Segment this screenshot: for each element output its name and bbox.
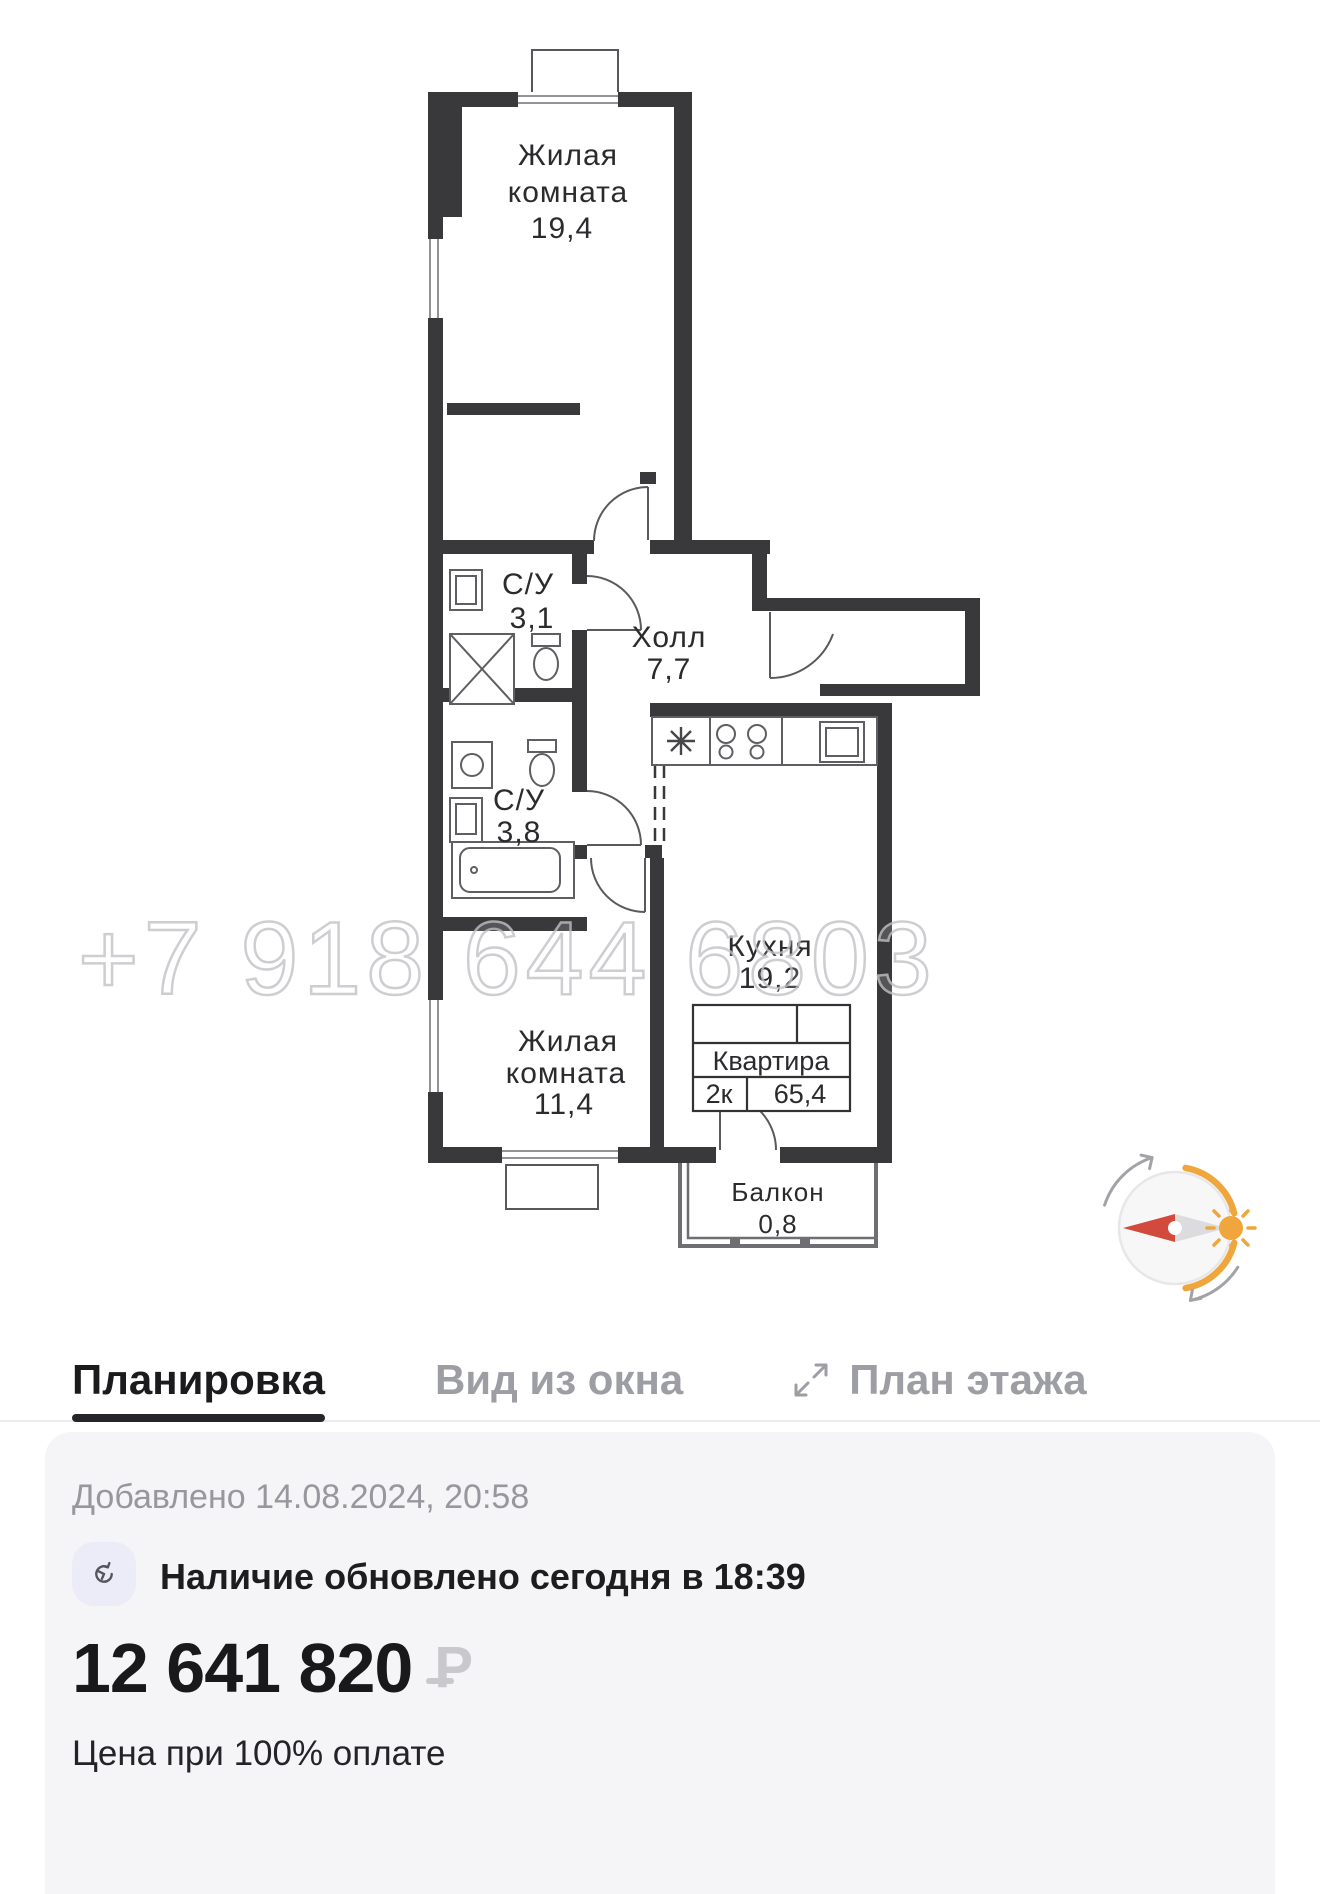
- tab-window-view[interactable]: Вид из окна: [435, 1340, 683, 1420]
- table-title: Квартира: [713, 1046, 831, 1076]
- price-row: 12 641 820 Р: [72, 1628, 473, 1708]
- hall-label: Холл: [632, 621, 707, 654]
- tab-window-view-label: Вид из окна: [435, 1356, 683, 1404]
- tab-layout[interactable]: Планировка: [72, 1340, 325, 1420]
- kitchen-area: 19,2: [739, 962, 801, 995]
- added-date: Добавлено 14.08.2024, 20:58: [72, 1478, 529, 1517]
- sun-orientation-widget[interactable]: [1085, 1128, 1265, 1313]
- balcony-label: Балкон: [731, 1177, 824, 1207]
- table-total-area: 65,4: [774, 1079, 827, 1109]
- wc-small-area: 3,1: [510, 602, 555, 635]
- ruble-sign-icon: Р: [434, 1639, 473, 1697]
- wc-big-label: С/У: [493, 784, 545, 817]
- sun-icon: [1207, 1204, 1255, 1252]
- availability-text: Наличие обновлено сегодня в 18:39: [160, 1556, 806, 1598]
- tab-layout-label: Планировка: [72, 1356, 325, 1404]
- availability-badge: [72, 1542, 136, 1606]
- listing-page: Квартира 2к 65,4 Жилая комната 19,4 С/У …: [0, 0, 1320, 1894]
- appliance-icon: [820, 722, 864, 762]
- price-note: Цена при 100% оплате: [72, 1734, 445, 1774]
- apartment-info-table: Квартира 2к 65,4: [693, 1005, 850, 1111]
- dashed-boundary: [655, 765, 664, 845]
- kitchen-label: Кухня: [727, 930, 812, 963]
- price-value: 12 641 820: [72, 1628, 412, 1708]
- room-bottom-label-1: Жилая: [518, 1025, 618, 1058]
- tab-floor-plan-label: План этажа: [849, 1356, 1086, 1404]
- room-bottom-area: 11,4: [534, 1088, 594, 1121]
- tab-bar: Планировка Вид из окна План этажа: [0, 1340, 1320, 1422]
- active-tab-underline: [72, 1414, 325, 1422]
- room-bottom-label-2: комната: [506, 1057, 626, 1090]
- listing-details-card: Добавлено 14.08.2024, 20:58 Наличие обно…: [45, 1432, 1275, 1894]
- table-room-count: 2к: [706, 1079, 733, 1109]
- room-top-label-1: Жилая: [518, 139, 618, 172]
- tab-floor-plan[interactable]: План этажа: [793, 1340, 1086, 1420]
- kitchen-counter: [652, 717, 877, 765]
- hall-area: 7,7: [647, 653, 692, 686]
- sink-icon: [667, 727, 695, 755]
- room-top-label-2: комната: [508, 176, 628, 209]
- expand-icon: [793, 1362, 829, 1398]
- room-top-area: 19,4: [531, 212, 593, 245]
- wc-small-label: С/У: [502, 568, 554, 601]
- floor-plan: Квартира 2к 65,4 Жилая комната 19,4 С/У …: [0, 0, 1320, 1320]
- clock-history-icon: [85, 1555, 123, 1593]
- wc-big-area: 3,8: [497, 816, 542, 849]
- balcony-area: 0,8: [758, 1209, 797, 1239]
